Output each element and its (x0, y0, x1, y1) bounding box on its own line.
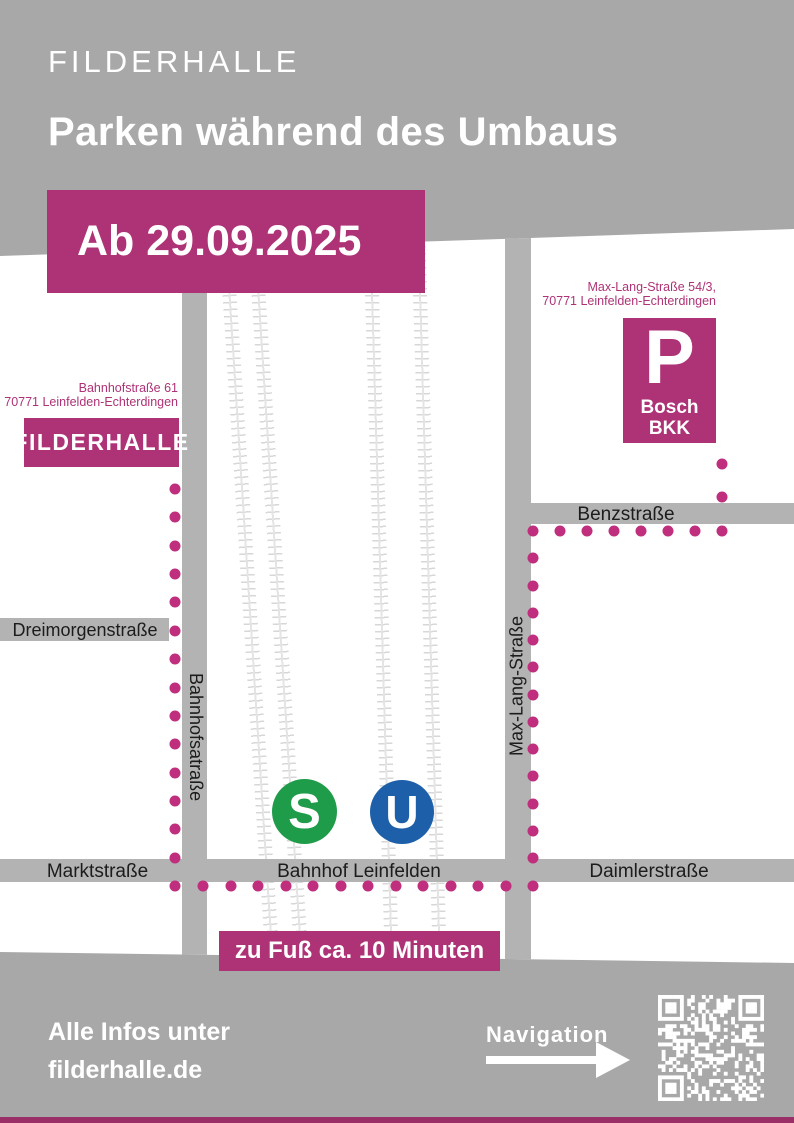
route-dot (528, 635, 539, 646)
route-dot (170, 625, 181, 636)
route-dot (170, 767, 181, 778)
route-dot (280, 881, 291, 892)
parking-name-line2: BKK (623, 418, 716, 439)
street-bahnhofsatrasse (182, 0, 207, 1123)
parking-address-line2: 70771 Leinfelden-Echterdingen (542, 294, 716, 308)
route-dot (170, 569, 181, 580)
route-dot (528, 771, 539, 782)
parking-address: Max-Lang-Straße 54/3, 70771 Leinfelden-E… (542, 280, 716, 308)
route-dot (390, 881, 401, 892)
street-label-bahnhof-leinfelden: Bahnhof Leinfelden (208, 861, 510, 883)
route-dot (636, 526, 647, 537)
route-dot (528, 881, 539, 892)
route-dot (663, 526, 674, 537)
street-label-dreimorgenstrasse: Dreimorgenstraße (2, 620, 168, 641)
route-dot (418, 881, 429, 892)
route-dot (528, 689, 539, 700)
parking-marker: P Bosch BKK (623, 318, 716, 443)
route-dot (528, 798, 539, 809)
route-dot (170, 852, 181, 863)
street-label-benzstrasse: Benzstraße (531, 504, 721, 526)
parking-address-line1: Max-Lang-Straße 54/3, (542, 280, 716, 294)
route-dot (335, 881, 346, 892)
filderhalle-address: Bahnhofstraße 61 70771 Leinfelden-Echter… (4, 381, 178, 409)
navigation-arrow-icon (486, 1056, 598, 1064)
route-dot (717, 526, 728, 537)
route-dot (473, 881, 484, 892)
filderhalle-address-line2: 70771 Leinfelden-Echterdingen (4, 395, 178, 409)
brand-title: FILDERHALLE (48, 44, 300, 80)
walk-time-badge: zu Fuß ca. 10 Minuten (219, 931, 500, 971)
route-dot (717, 492, 728, 503)
navigation-arrowhead-icon (596, 1042, 630, 1078)
route-dot (690, 526, 701, 537)
route-dot (170, 710, 181, 721)
street-label-max-lang-strasse: Max-Lang-Straße (504, 610, 530, 762)
qr-code (658, 995, 764, 1101)
page-title: Parken während des Umbaus (48, 110, 618, 155)
sbahn-icon: S (272, 779, 337, 844)
route-dot (528, 580, 539, 591)
route-dot (528, 825, 539, 836)
route-dot (170, 881, 181, 892)
route-dot (582, 526, 593, 537)
footer-accent-bar (0, 1117, 794, 1123)
footer-info-line2: filderhalle.de (48, 1051, 230, 1089)
route-dot (170, 682, 181, 693)
navigation-label: Navigation (486, 1022, 608, 1048)
route-dot (170, 512, 181, 523)
route-dot (528, 662, 539, 673)
route-dot (170, 484, 181, 495)
footer-info-line1: Alle Infos unter (48, 1013, 230, 1051)
route-dot (717, 459, 728, 470)
route-dot (198, 881, 209, 892)
filderhalle-marker: FILDERHALLE (24, 418, 179, 467)
route-dot (528, 526, 539, 537)
ubahn-icon: U (370, 780, 434, 844)
route-dot (528, 744, 539, 755)
route-dot (528, 553, 539, 564)
street-max-lang-strasse (505, 0, 531, 1123)
route-dot (528, 716, 539, 727)
route-dot (170, 540, 181, 551)
street-label-marktstrasse: Marktstraße (0, 861, 195, 883)
route-dot (225, 881, 236, 892)
street-label-daimlerstrasse: Daimlerstraße (531, 861, 767, 883)
footer-info: Alle Infos unter filderhalle.de (48, 1013, 230, 1089)
route-dot (555, 526, 566, 537)
filderhalle-address-line1: Bahnhofstraße 61 (4, 381, 178, 395)
parking-icon: P (623, 322, 716, 394)
route-dot (500, 881, 511, 892)
route-dot (170, 654, 181, 665)
route-dot (445, 881, 456, 892)
start-date-badge: Ab 29.09.2025 (47, 190, 425, 293)
route-dot (308, 881, 319, 892)
parking-name-line1: Bosch (623, 397, 716, 418)
route-dot (170, 597, 181, 608)
route-dot (609, 526, 620, 537)
route-dot (170, 739, 181, 750)
route-dot (170, 795, 181, 806)
street-label-bahnhofsatrasse: Bahnhofsatraße (185, 673, 206, 801)
route-dot (528, 607, 539, 618)
route-dot (528, 853, 539, 864)
route-dot (170, 824, 181, 835)
route-dot (253, 881, 264, 892)
route-dot (363, 881, 374, 892)
